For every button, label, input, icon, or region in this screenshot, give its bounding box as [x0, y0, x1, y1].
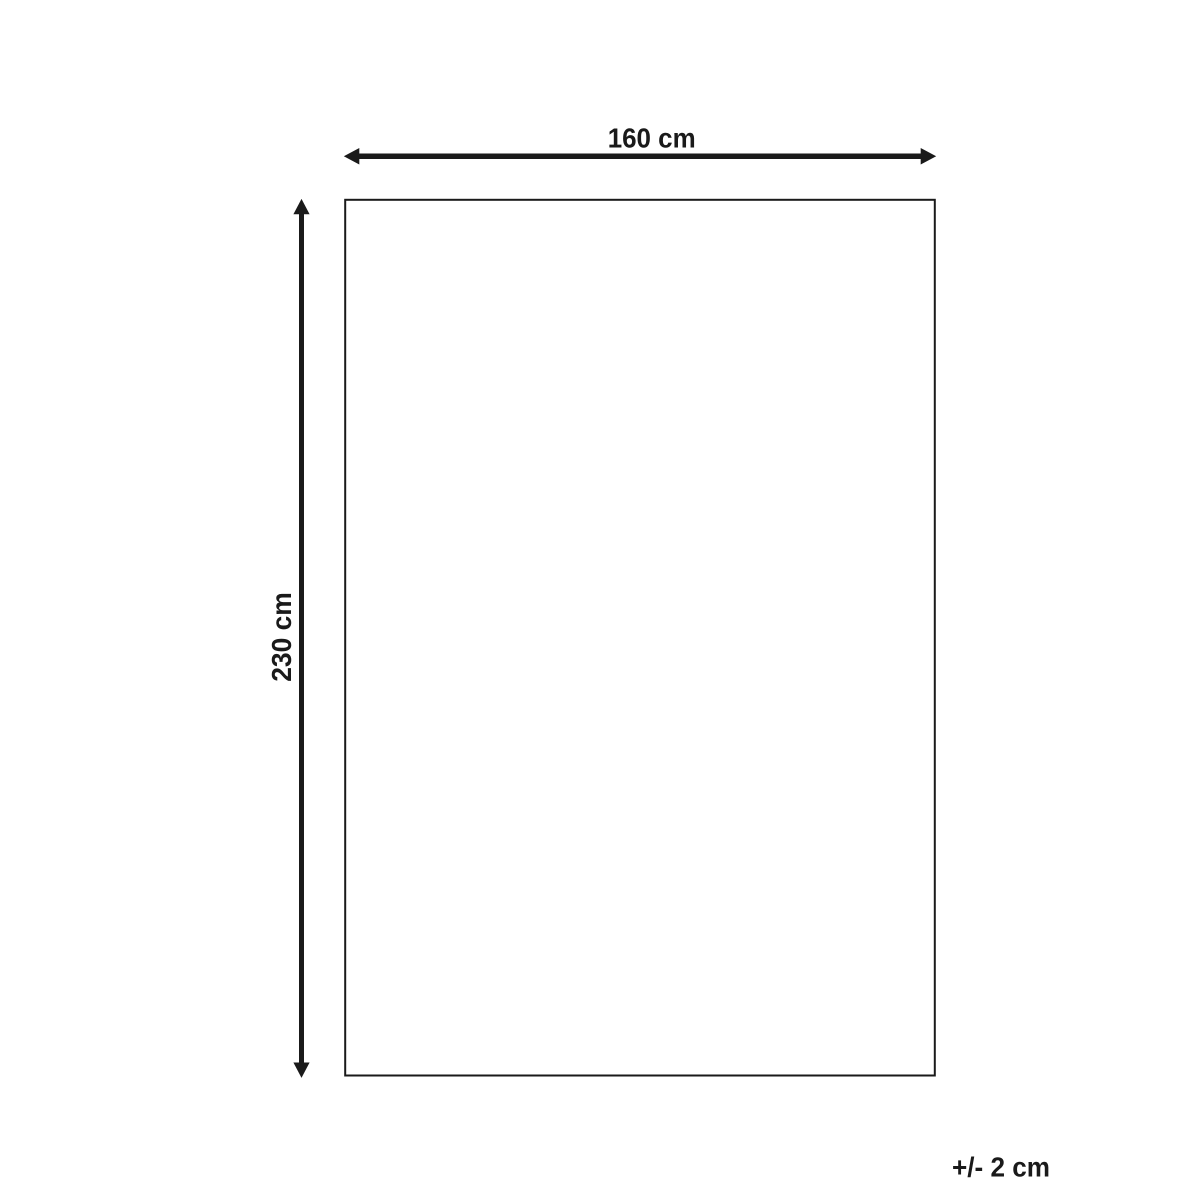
- svg-text:+/- 2 cm: +/- 2 cm: [952, 1151, 1050, 1182]
- svg-text:230 cm: 230 cm: [266, 592, 297, 682]
- svg-text:160 cm: 160 cm: [608, 123, 696, 154]
